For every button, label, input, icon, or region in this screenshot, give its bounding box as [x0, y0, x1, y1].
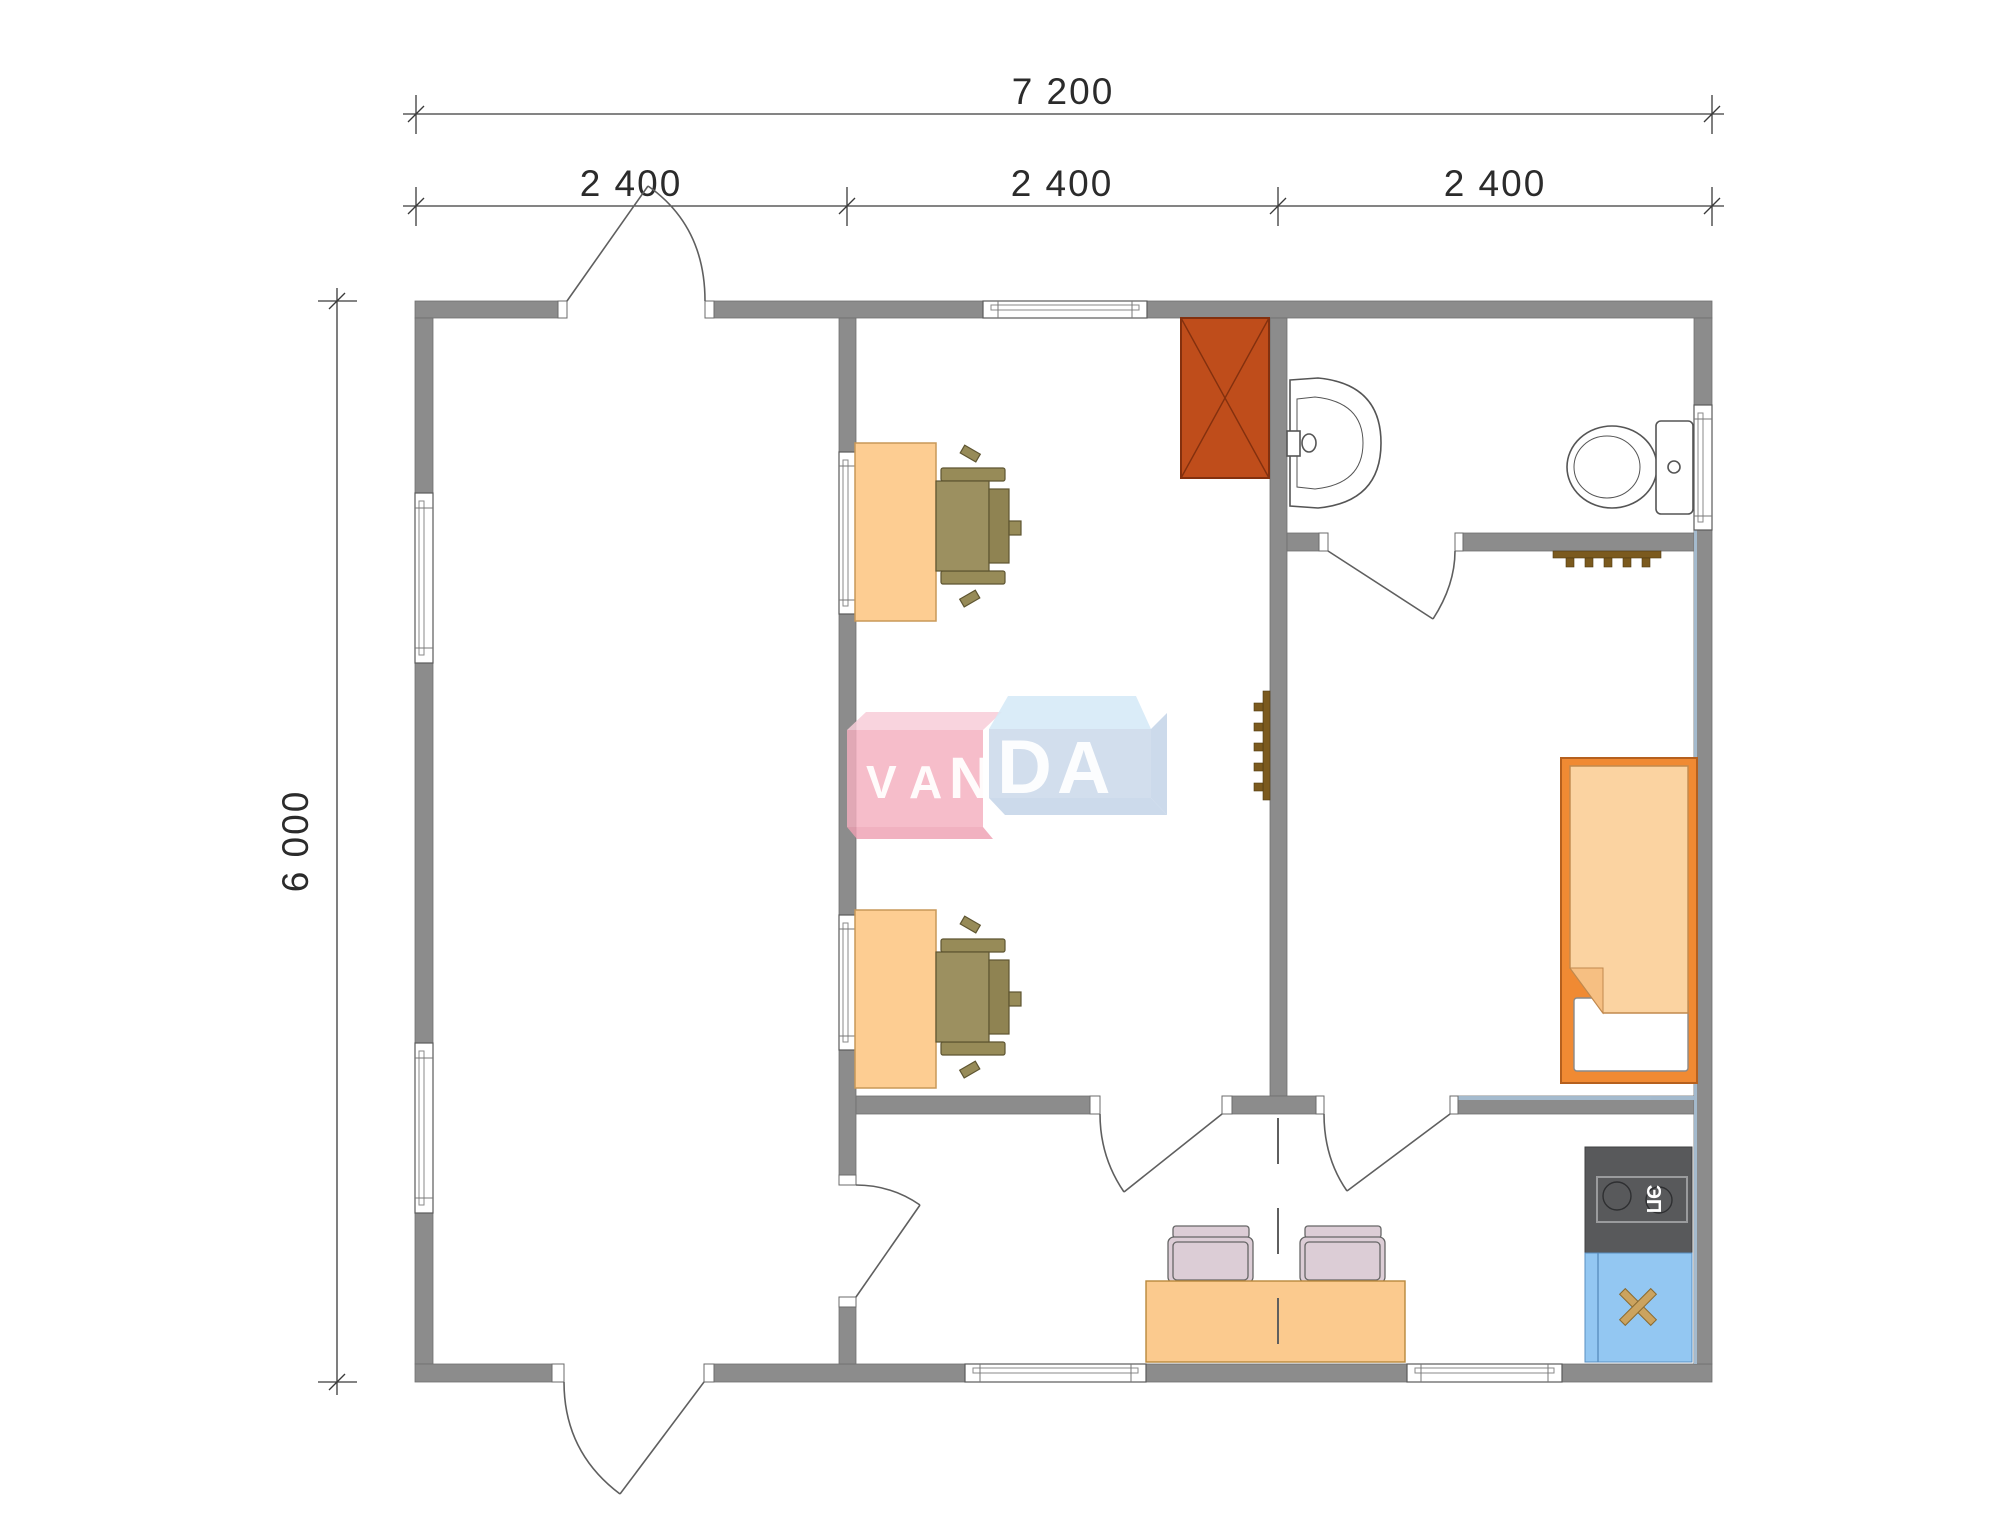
logo-letter: D	[997, 725, 1052, 810]
dining-chair-icon	[1300, 1226, 1385, 1283]
jamb	[1316, 1096, 1324, 1114]
dim-label-segment-3: 2 400	[1444, 163, 1547, 204]
window-icon	[965, 1364, 1146, 1382]
logo-pink-top-face	[847, 712, 1002, 730]
window-icon	[1407, 1364, 1562, 1382]
wall-left	[415, 318, 433, 493]
office-chair-icon	[936, 916, 1021, 1078]
kitchen-sink-icon	[1585, 1253, 1692, 1362]
wall-interior-middle	[1270, 318, 1287, 1096]
coat-hooks-icon	[1553, 551, 1661, 567]
jamb	[558, 301, 567, 318]
door-swing-icon	[1100, 1114, 1222, 1192]
wall-left	[415, 663, 433, 1043]
wall-bathroom	[1287, 533, 1319, 551]
dim-label-total-height: 6 000	[275, 790, 316, 893]
coat-hooks-icon	[1254, 691, 1270, 800]
wall-highlight	[1458, 1096, 1694, 1100]
wall-right	[1694, 318, 1712, 405]
dim-label-segment-2: 2 400	[1011, 163, 1114, 204]
wall-bottom	[1562, 1364, 1712, 1382]
bed-icon	[1561, 758, 1697, 1083]
logo-letter: A	[1057, 726, 1110, 809]
wall-top	[705, 301, 983, 318]
wall-bottom	[415, 1364, 552, 1382]
wardrobe-icon	[1181, 318, 1269, 478]
wall-top	[1147, 301, 1712, 318]
logo-blue-right-face	[1151, 713, 1167, 815]
door-swing-icon	[1324, 1114, 1450, 1191]
door-swing-icon	[564, 1382, 704, 1494]
jamb	[1222, 1096, 1232, 1114]
logo-letter: A	[909, 756, 942, 808]
windows	[415, 301, 1712, 1382]
jamb	[1455, 533, 1463, 551]
window-icon	[839, 452, 856, 614]
window-icon	[415, 1043, 433, 1213]
wall-interior-porch	[839, 1307, 856, 1364]
jamb	[1450, 1096, 1458, 1114]
wall-hallway	[856, 1096, 1090, 1114]
dim-label-total-width: 7 200	[1012, 71, 1115, 112]
wall-interior-porch	[839, 318, 856, 452]
office-chair-icon	[936, 445, 1021, 607]
wall-bottom	[714, 1364, 965, 1382]
stove-label: ЭП	[1642, 1185, 1664, 1214]
door-swing-icon	[1328, 551, 1455, 619]
stove-icon: ЭП	[1585, 1147, 1692, 1253]
window-icon	[839, 915, 856, 1050]
logo-letter: N	[949, 746, 991, 811]
jamb	[552, 1364, 564, 1382]
desk-icon	[855, 910, 936, 1088]
walls	[415, 301, 1712, 1382]
jamb	[839, 1175, 856, 1185]
window-icon	[983, 301, 1147, 318]
floor-plan-canvas: 7 200 2 400 2 400 2 400 6 000	[0, 0, 2000, 1524]
dining-table-icon	[1146, 1281, 1405, 1362]
window-icon	[415, 493, 433, 663]
jamb	[1090, 1096, 1100, 1114]
desk-icon	[855, 443, 936, 621]
washbasin-icon	[1287, 378, 1381, 508]
wall-bathroom	[1463, 533, 1694, 551]
window-icon	[1694, 405, 1712, 530]
wall-interior-porch	[839, 1050, 856, 1175]
vanda-watermark: V A N D A	[847, 696, 1167, 839]
dim-label-segment-1: 2 400	[580, 163, 683, 204]
jamb	[704, 1364, 714, 1382]
dining-chair-icon	[1168, 1226, 1253, 1283]
toilet-icon	[1567, 421, 1693, 514]
wall-left	[415, 1213, 433, 1364]
door-swing-icon	[856, 1185, 920, 1297]
wall-hallway	[1232, 1096, 1316, 1114]
floor-plan: 7 200 2 400 2 400 2 400 6 000	[0, 0, 2000, 1524]
jamb	[839, 1297, 856, 1307]
logo-pink-bottom-face	[847, 827, 993, 839]
wall-bottom	[1146, 1364, 1407, 1382]
jamb	[705, 301, 714, 318]
logo-letter: V	[866, 756, 897, 808]
jamb	[1319, 533, 1328, 551]
wall-top	[415, 301, 567, 318]
